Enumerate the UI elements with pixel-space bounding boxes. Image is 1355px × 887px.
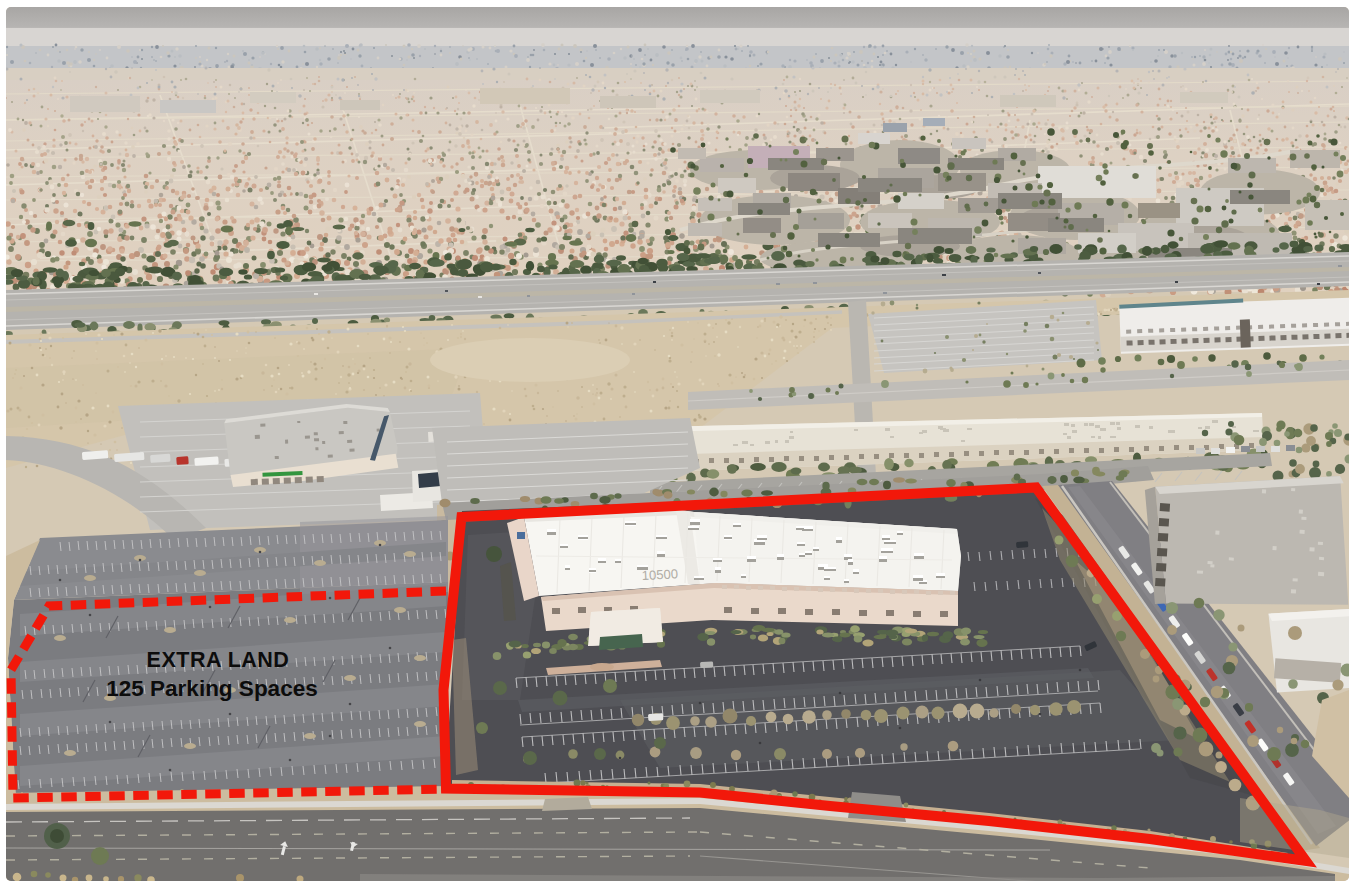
svg-text:125 Parking Spaces: 125 Parking Spaces — [106, 676, 317, 701]
svg-text:EXTRA LAND: EXTRA LAND — [147, 648, 290, 672]
svg-text:10500: 10500 — [641, 566, 678, 583]
